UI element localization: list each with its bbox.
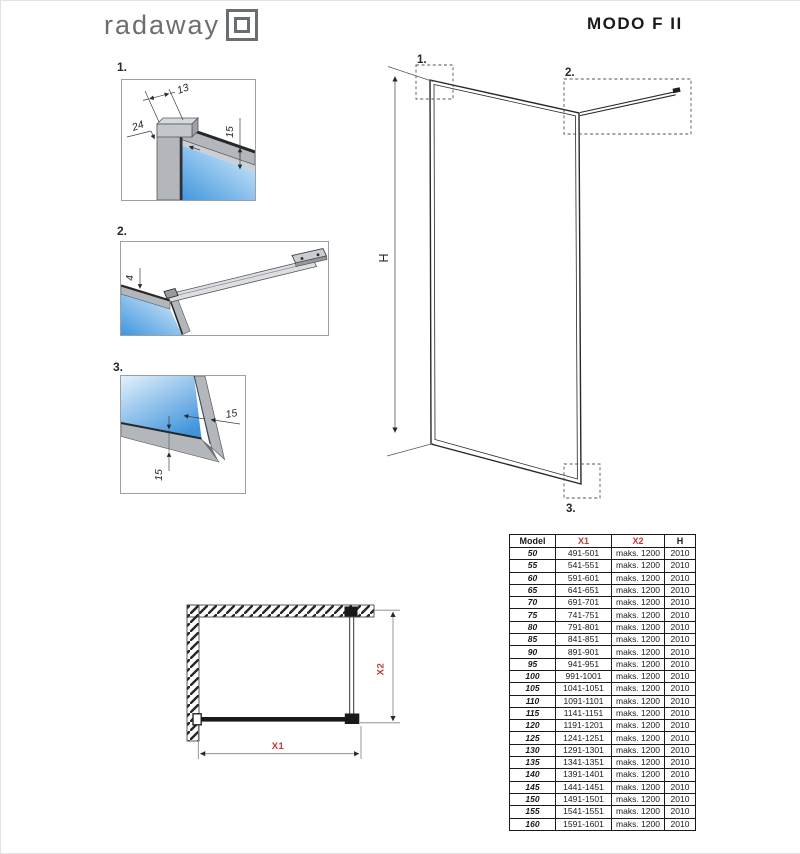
product-title: MODO F II <box>587 14 683 34</box>
model-cell: 115 <box>510 707 556 719</box>
h-cell: 2010 <box>665 609 696 621</box>
model-cell: 120 <box>510 720 556 732</box>
x2-cell: maks. 1200 <box>612 793 665 805</box>
table-row: 90891-901maks. 12002010 <box>510 646 696 658</box>
h-cell: 2010 <box>665 584 696 596</box>
x2-cell: maks. 1200 <box>612 818 665 830</box>
x2-cell: maks. 1200 <box>612 683 665 695</box>
x1-cell: 941-951 <box>556 658 612 670</box>
col-header-x2: X2 <box>612 535 665 548</box>
x2-cell: maks. 1200 <box>612 806 665 818</box>
model-cell: 145 <box>510 781 556 793</box>
h-cell: 2010 <box>665 548 696 560</box>
elevation-figure: H 1. 2. 3. <box>376 51 706 531</box>
h-cell: 2010 <box>665 707 696 719</box>
model-cell: 100 <box>510 670 556 682</box>
x2-cell: maks. 1200 <box>612 658 665 670</box>
detail1-label: 1. <box>117 60 127 74</box>
h-cell: 2010 <box>665 572 696 584</box>
table-row: 70691-701maks. 12002010 <box>510 597 696 609</box>
x1-cell: 541-551 <box>556 560 612 572</box>
table-row: 1051041-1051maks. 12002010 <box>510 683 696 695</box>
table-row: 1501491-1501maks. 12002010 <box>510 793 696 805</box>
x1-cell: 641-651 <box>556 584 612 596</box>
height-dim-label: H <box>377 253 391 262</box>
table-row: 50491-501maks. 12002010 <box>510 548 696 560</box>
x1-cell: 1441-1451 <box>556 781 612 793</box>
h-cell: 2010 <box>665 781 696 793</box>
table-header-row: Model X1 X2 H <box>510 535 696 548</box>
plan-figure: X2 X1 <box>181 596 406 776</box>
size-table: Model X1 X2 H 50491-501maks. 12002010555… <box>509 534 696 831</box>
brand-logo-square-icon <box>226 9 258 41</box>
model-cell: 85 <box>510 634 556 646</box>
table-row: 1251241-1251maks. 12002010 <box>510 732 696 744</box>
detail3-dim-15-bottom: 15 <box>153 469 165 481</box>
x1-cell: 891-901 <box>556 646 612 658</box>
col-header-x1: X1 <box>556 535 612 548</box>
x2-cell: maks. 1200 <box>612 572 665 584</box>
brand-logo: radaway <box>104 9 258 41</box>
table-row: 65641-651maks. 12002010 <box>510 584 696 596</box>
x1-cell: 1191-1201 <box>556 720 612 732</box>
plan-x1-label: X1 <box>272 741 285 752</box>
model-cell: 160 <box>510 818 556 830</box>
x1-cell: 741-751 <box>556 609 612 621</box>
model-cell: 75 <box>510 609 556 621</box>
x1-cell: 1091-1101 <box>556 695 612 707</box>
model-cell: 60 <box>510 572 556 584</box>
model-cell: 95 <box>510 658 556 670</box>
support-arm <box>167 259 317 302</box>
model-cell: 50 <box>510 548 556 560</box>
h-cell: 2010 <box>665 646 696 658</box>
model-cell: 140 <box>510 769 556 781</box>
x1-cell: 1141-1151 <box>556 707 612 719</box>
h-cell: 2010 <box>665 720 696 732</box>
x1-cell: 591-601 <box>556 572 612 584</box>
callout-box-2 <box>564 79 691 134</box>
x1-cell: 1291-1301 <box>556 744 612 756</box>
x2-cell: maks. 1200 <box>612 634 665 646</box>
h-cell: 2010 <box>665 732 696 744</box>
h-cell: 2010 <box>665 757 696 769</box>
table-row: 95941-951maks. 12002010 <box>510 658 696 670</box>
detail2-dim-4: 4 <box>124 275 136 281</box>
x2-cell: maks. 1200 <box>612 584 665 596</box>
model-cell: 135 <box>510 757 556 769</box>
h-cell: 2010 <box>665 769 696 781</box>
table-row: 1351341-1351maks. 12002010 <box>510 757 696 769</box>
x1-cell: 1341-1351 <box>556 757 612 769</box>
x1-cell: 691-701 <box>556 597 612 609</box>
x2-cell: maks. 1200 <box>612 781 665 793</box>
x1-cell: 1491-1501 <box>556 793 612 805</box>
model-cell: 105 <box>510 683 556 695</box>
table-row: 75741-751maks. 12002010 <box>510 609 696 621</box>
detail1-drawing: 13 24 15 <box>122 80 255 200</box>
x2-cell: maks. 1200 <box>612 670 665 682</box>
x1-cell: 1541-1551 <box>556 806 612 818</box>
detail2-drawing: 4 <box>121 242 328 335</box>
h-cell: 2010 <box>665 560 696 572</box>
h-cell: 2010 <box>665 634 696 646</box>
x2-cell: maks. 1200 <box>612 695 665 707</box>
model-cell: 155 <box>510 806 556 818</box>
model-cell: 125 <box>510 732 556 744</box>
model-cell: 130 <box>510 744 556 756</box>
x2-cell: maks. 1200 <box>612 560 665 572</box>
callout-box-1 <box>416 65 453 99</box>
support-arm <box>580 92 675 113</box>
elevation-callout2-label: 2. <box>565 67 575 79</box>
x1-cell: 1241-1251 <box>556 732 612 744</box>
table-row: 85841-851maks. 12002010 <box>510 634 696 646</box>
x1-cell: 1041-1051 <box>556 683 612 695</box>
table-row: 1101091-1101maks. 12002010 <box>510 695 696 707</box>
detail1-dim-13: 13 <box>175 81 190 96</box>
x2-cell: maks. 1200 <box>612 744 665 756</box>
x2-cell: maks. 1200 <box>612 720 665 732</box>
table-row: 80791-801maks. 12002010 <box>510 621 696 633</box>
detail3-figure: 15 15 <box>120 375 246 494</box>
table-row: 1301291-1301maks. 12002010 <box>510 744 696 756</box>
h-cell: 2010 <box>665 744 696 756</box>
x1-cell: 491-501 <box>556 548 612 560</box>
x2-cell: maks. 1200 <box>612 609 665 621</box>
plan-x2-label: X2 <box>376 663 387 676</box>
model-cell: 70 <box>510 597 556 609</box>
model-cell: 150 <box>510 793 556 805</box>
brand-logo-text: radaway <box>104 12 220 39</box>
h-cell: 2010 <box>665 621 696 633</box>
h-cell: 2010 <box>665 597 696 609</box>
h-cell: 2010 <box>665 670 696 682</box>
model-cell: 90 <box>510 646 556 658</box>
model-cell: 55 <box>510 560 556 572</box>
h-cell: 2010 <box>665 658 696 670</box>
model-cell: 80 <box>510 621 556 633</box>
x1-cell: 1591-1601 <box>556 818 612 830</box>
model-cell: 65 <box>510 584 556 596</box>
elevation-callout3-label: 3. <box>566 503 576 515</box>
x1-cell: 791-801 <box>556 621 612 633</box>
detail3-drawing: 15 15 <box>121 376 245 493</box>
table-row: 1451441-1451maks. 12002010 <box>510 781 696 793</box>
table-row: 1551541-1551maks. 12002010 <box>510 806 696 818</box>
table-row: 100991-1001maks. 12002010 <box>510 670 696 682</box>
table-row: 60591-601maks. 12002010 <box>510 572 696 584</box>
detail2-figure: 4 <box>120 241 329 336</box>
h-cell: 2010 <box>665 793 696 805</box>
glass-panel-outline <box>430 80 581 484</box>
x2-cell: maks. 1200 <box>612 597 665 609</box>
table-row: 1601591-1601maks. 12002010 <box>510 818 696 830</box>
glass-panel-plan <box>198 717 358 722</box>
elevation-callout1-label: 1. <box>417 54 427 66</box>
detail1-figure: 13 24 15 <box>121 79 256 201</box>
elevation-drawing: H 1. 2. 3. <box>376 51 706 526</box>
h-cell: 2010 <box>665 695 696 707</box>
col-header-h: H <box>665 535 696 548</box>
plan-drawing: X2 X1 <box>181 596 406 771</box>
table-row: 1401391-1401maks. 12002010 <box>510 769 696 781</box>
x2-cell: maks. 1200 <box>612 548 665 560</box>
model-cell: 110 <box>510 695 556 707</box>
table-row: 1201191-1201maks. 12002010 <box>510 720 696 732</box>
x2-cell: maks. 1200 <box>612 732 665 744</box>
x2-cell: maks. 1200 <box>612 621 665 633</box>
detail1-dim-24: 24 <box>129 118 145 134</box>
x1-cell: 991-1001 <box>556 670 612 682</box>
x2-cell: maks. 1200 <box>612 757 665 769</box>
detail2-label: 2. <box>117 224 127 238</box>
datasheet-page: radaway MODO F II 1. <box>0 0 800 854</box>
h-cell: 2010 <box>665 818 696 830</box>
detail3-dim-15-right: 15 <box>225 407 239 421</box>
table-row: 55541-551maks. 12002010 <box>510 560 696 572</box>
table-row: 1151141-1151maks. 12002010 <box>510 707 696 719</box>
x2-cell: maks. 1200 <box>612 646 665 658</box>
x1-cell: 841-851 <box>556 634 612 646</box>
arm-end-cap <box>673 87 681 93</box>
x2-cell: maks. 1200 <box>612 769 665 781</box>
h-cell: 2010 <box>665 683 696 695</box>
h-cell: 2010 <box>665 806 696 818</box>
x1-cell: 1391-1401 <box>556 769 612 781</box>
detail1-dim-15: 15 <box>224 126 236 138</box>
x2-cell: maks. 1200 <box>612 707 665 719</box>
detail3-label: 3. <box>113 360 123 374</box>
wall-profile-plan <box>193 714 201 725</box>
col-header-model: Model <box>510 535 556 548</box>
size-table-body: 50491-501maks. 1200201055541-551maks. 12… <box>510 548 696 831</box>
